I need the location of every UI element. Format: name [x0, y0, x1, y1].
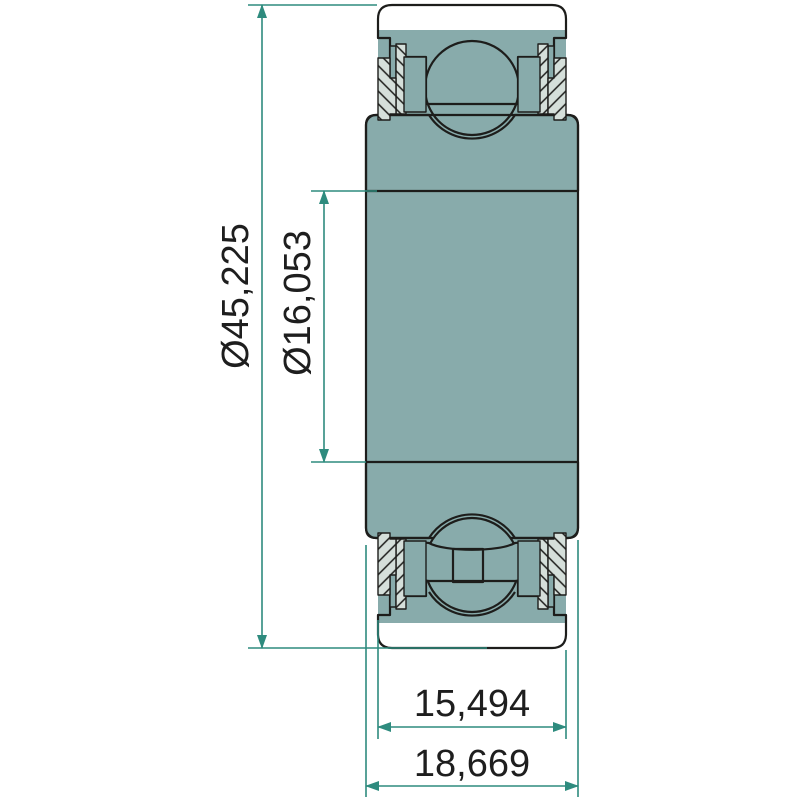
- dimension-outer-ring-width: 15,494: [378, 620, 566, 739]
- outer-diameter-label: Ø45,225: [215, 223, 257, 369]
- outer-ring-width-label: 15,494: [414, 683, 530, 725]
- inner-ring-bore-surface: [366, 115, 578, 538]
- bearing-technical-drawing: Ø45,225 Ø16,053 15,494 18,669: [0, 0, 800, 800]
- dimension-bore-diameter: Ø16,053: [277, 191, 377, 462]
- total-width-label: 18,669: [414, 743, 530, 785]
- bore-diameter-label: Ø16,053: [277, 230, 319, 376]
